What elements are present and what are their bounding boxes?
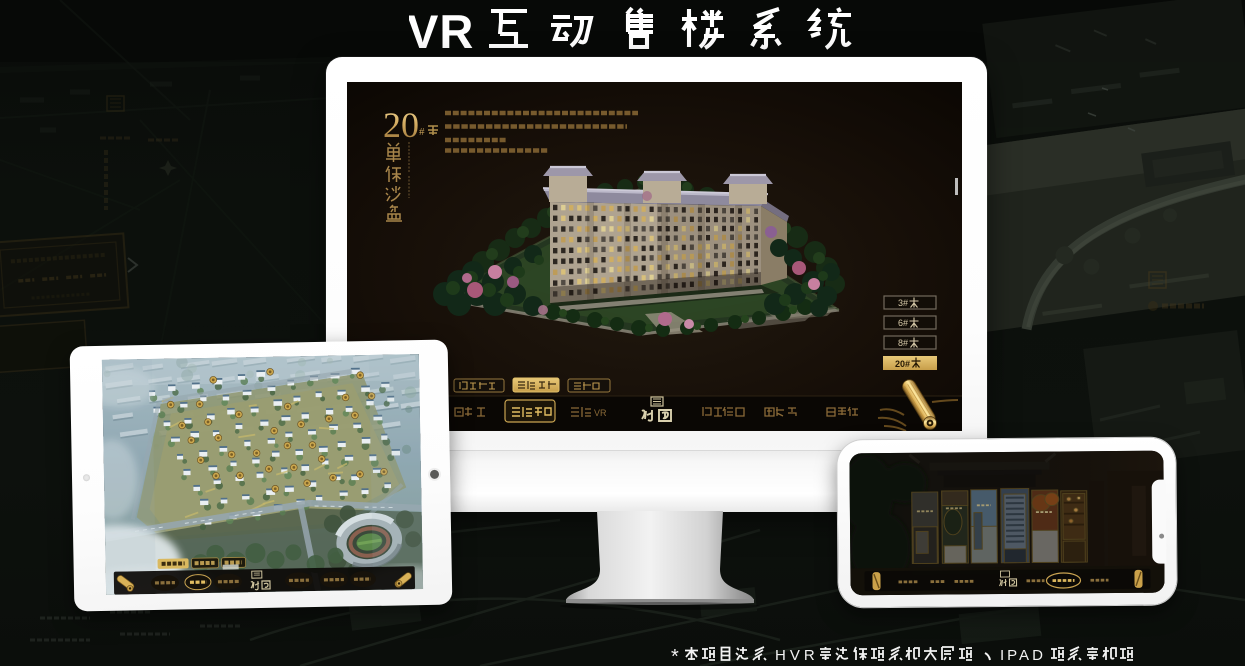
- svg-text:*: *: [671, 646, 679, 666]
- svg-text:VR: VR: [594, 408, 607, 418]
- svg-text:HVR: HVR: [775, 647, 819, 664]
- svg-text:8#: 8#: [898, 338, 908, 348]
- svg-text:20#: 20#: [895, 359, 910, 369]
- svg-text:#: #: [419, 126, 425, 138]
- svg-text:6#: 6#: [898, 318, 908, 328]
- svg-text:20: 20: [383, 105, 419, 145]
- svg-text:3#: 3#: [898, 298, 908, 308]
- svg-text:IPAD: IPAD: [1000, 647, 1046, 664]
- svg-text:VR: VR: [409, 5, 474, 57]
